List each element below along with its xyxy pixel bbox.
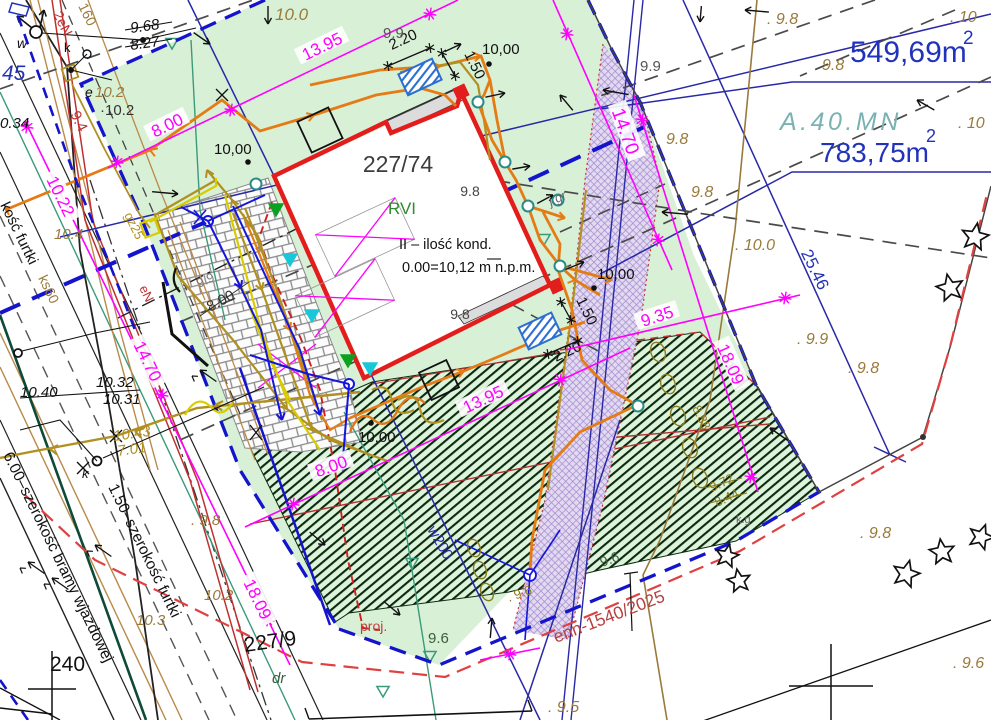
svg-text:10,00: 10,00 bbox=[597, 266, 635, 283]
svg-text:. 9.8: . 9.8 bbox=[860, 525, 891, 542]
svg-text:10.40: 10.40 bbox=[20, 384, 58, 401]
svg-text:0.34: 0.34 bbox=[0, 115, 29, 132]
svg-text:10.31: 10.31 bbox=[103, 391, 141, 408]
svg-text:10.2: 10.2 bbox=[204, 587, 234, 604]
svg-text:10,00: 10,00 bbox=[482, 41, 520, 58]
svg-text:240: 240 bbox=[50, 653, 85, 676]
svg-text:2: 2 bbox=[926, 126, 936, 146]
svg-text:783,75m: 783,75m bbox=[820, 137, 929, 168]
svg-text:10.32: 10.32 bbox=[96, 374, 134, 391]
svg-text:10.3: 10.3 bbox=[136, 612, 166, 629]
svg-text:. 9.6: . 9.6 bbox=[953, 655, 984, 672]
svg-text:k: k bbox=[64, 40, 71, 55]
svg-text:10,00: 10,00 bbox=[358, 429, 396, 446]
svg-text:9.9: 9.9 bbox=[383, 25, 404, 42]
svg-text:. 9.9: . 9.9 bbox=[797, 331, 828, 348]
svg-text:227/74: 227/74 bbox=[363, 151, 434, 177]
svg-text:RVI: RVI bbox=[388, 199, 416, 218]
svg-text:9.6: 9.6 bbox=[428, 630, 449, 647]
svg-text:A.40.MN: A.40.MN bbox=[778, 108, 902, 136]
svg-text:10,00: 10,00 bbox=[214, 141, 252, 158]
svg-text:dr: dr bbox=[272, 670, 286, 687]
svg-text:·10.2: ·10.2 bbox=[100, 102, 134, 119]
svg-text:9.8: 9.8 bbox=[822, 57, 844, 74]
svg-text:II – ilość kond.: II – ilość kond. bbox=[399, 237, 492, 253]
svg-text:9.9: 9.9 bbox=[640, 58, 661, 75]
svg-text:10.0: 10.0 bbox=[275, 5, 309, 24]
svg-text:k.g: k.g bbox=[736, 514, 751, 526]
svg-text:2: 2 bbox=[963, 28, 974, 49]
svg-text:. 9.8: . 9.8 bbox=[191, 512, 221, 529]
svg-text:0.00=10,12 m n.p.m.: 0.00=10,12 m n.p.m. bbox=[402, 260, 535, 276]
svg-text:9.8: 9.8 bbox=[666, 131, 688, 148]
svg-text:549,69m: 549,69m bbox=[850, 36, 967, 69]
svg-text:9.8: 9.8 bbox=[691, 184, 713, 201]
svg-text:9.8: 9.8 bbox=[460, 183, 480, 199]
svg-text:. 9.8: . 9.8 bbox=[848, 360, 879, 377]
svg-text:45: 45 bbox=[2, 62, 26, 85]
svg-text:. 10: . 10 bbox=[958, 115, 985, 132]
svg-text:. 9.5: . 9.5 bbox=[548, 699, 579, 716]
svg-text:e: e bbox=[85, 84, 93, 100]
svg-text:. 10.0: . 10.0 bbox=[735, 237, 775, 254]
svg-text:9.8: 9.8 bbox=[450, 306, 470, 322]
svg-text:10.4: 10.4 bbox=[54, 226, 83, 243]
svg-text:. 10: . 10 bbox=[950, 9, 977, 26]
svg-text:proj.: proj. bbox=[360, 618, 387, 634]
svg-text:10.2: 10.2 bbox=[95, 84, 125, 101]
svg-text:. 9.8: . 9.8 bbox=[767, 11, 798, 28]
